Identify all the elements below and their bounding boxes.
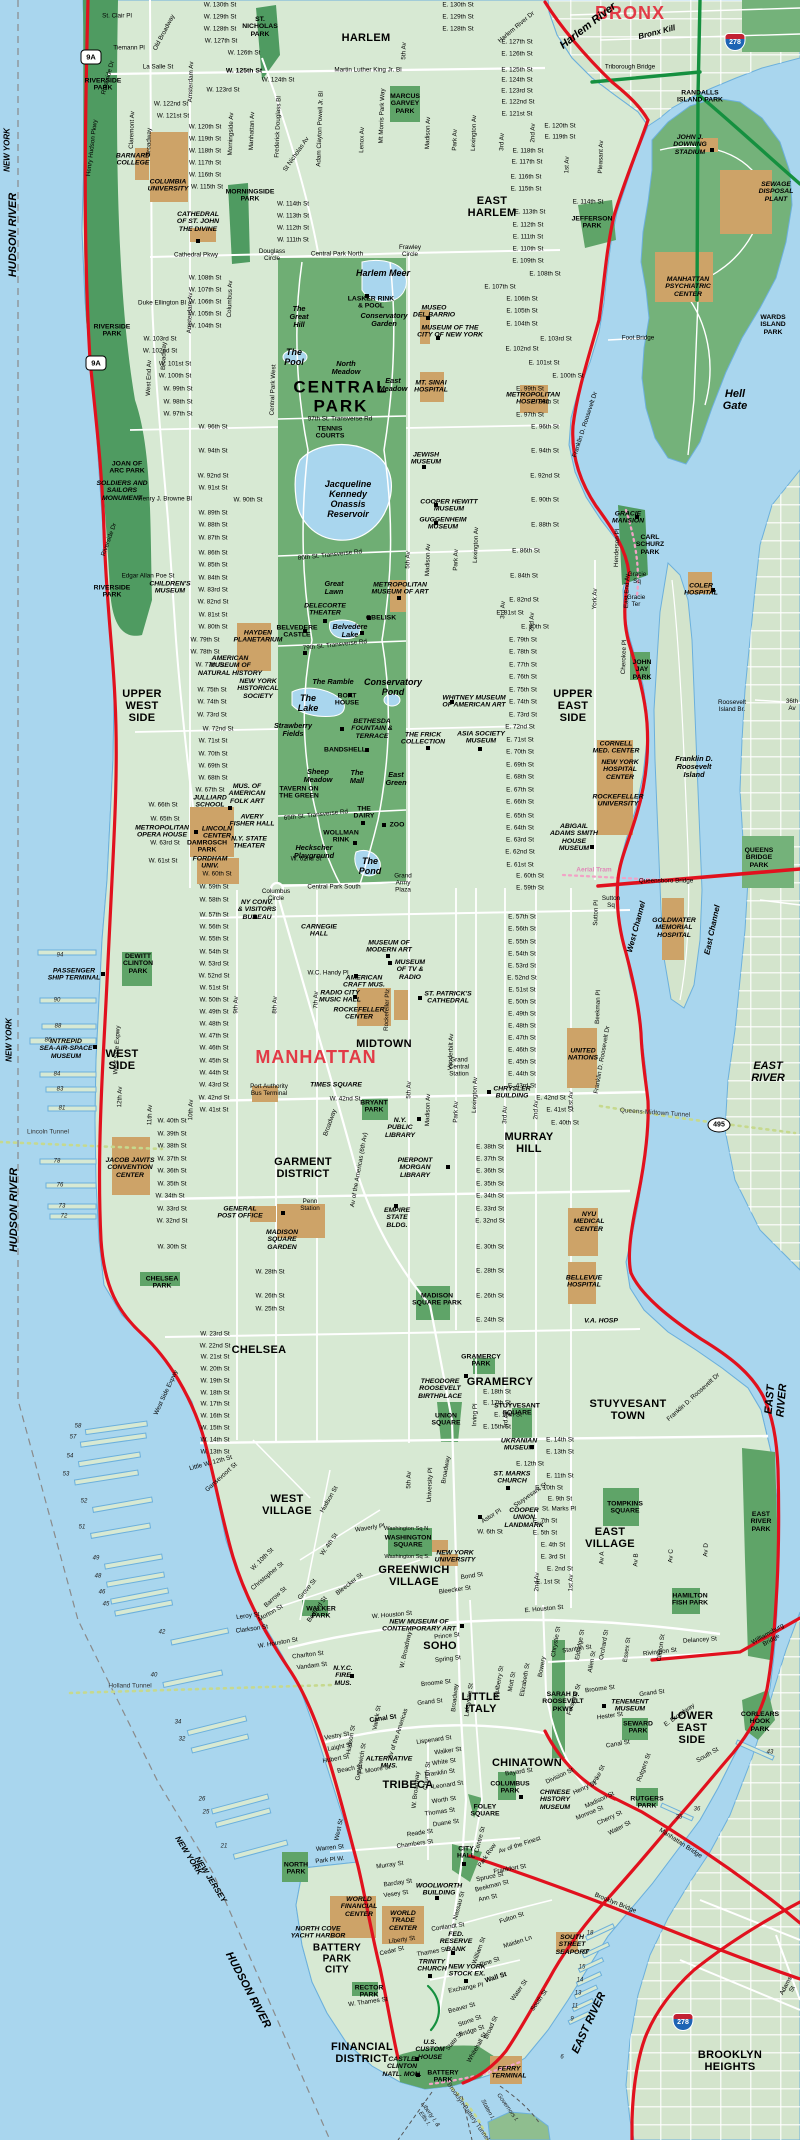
map-label: Central Park South bbox=[307, 885, 360, 892]
map-label: E. 36th St bbox=[476, 1169, 504, 1176]
map-label: Sheep Meadow bbox=[304, 768, 333, 784]
map-label: W. 21st St bbox=[201, 1355, 230, 1362]
map-label: LASKER RINK & POOL bbox=[348, 296, 394, 311]
landmark-marker bbox=[303, 651, 307, 655]
map-label: 90 bbox=[54, 998, 61, 1005]
map-label: E. 98th St bbox=[531, 400, 559, 407]
map-label: Warren St bbox=[316, 1844, 345, 1854]
map-label: 83 bbox=[57, 1087, 64, 1094]
map-label: Henderson Pl bbox=[614, 529, 622, 567]
map-label: COLUMBIA UNIVERSITY bbox=[148, 179, 189, 194]
map-label: RUTGERS PARK bbox=[630, 1796, 663, 1811]
map-label: Washington Sq N. bbox=[384, 1526, 430, 1532]
map-label: 2nd Av bbox=[534, 1572, 542, 1591]
map-label: Duke Ellington Bl bbox=[138, 301, 186, 308]
map-label: EAST RIVER bbox=[762, 1382, 789, 1418]
map-label: E. 130th St bbox=[442, 3, 473, 10]
map-label: W. 78th St bbox=[190, 650, 219, 657]
map-label: Washington Sq S. bbox=[384, 1554, 429, 1560]
map-label: 45 bbox=[103, 1602, 110, 1609]
map-label: LITTLE ITALY bbox=[461, 1691, 500, 1715]
map-label: Centre St bbox=[474, 1826, 488, 1853]
map-label: MANHATTAN PSYCHIATRIC CENTER bbox=[665, 276, 711, 298]
map-label: W. 117th St bbox=[189, 161, 221, 168]
map-label: E. 110th St bbox=[513, 247, 544, 254]
map-label: W. 90th St bbox=[233, 498, 262, 505]
map-label: Worth St bbox=[431, 1796, 456, 1806]
map-label: Harlem River bbox=[558, 0, 619, 51]
map-label: E. 77th St bbox=[509, 663, 537, 670]
map-label: 11th Av bbox=[147, 1105, 155, 1126]
map-label: W. 122nd St bbox=[154, 102, 188, 109]
map-label: COOPER UNION LANDMARK bbox=[504, 1507, 543, 1529]
map-label: W. 106th St bbox=[189, 300, 222, 307]
map-label: W. Broadway bbox=[412, 1771, 423, 1809]
landmark-marker bbox=[462, 1862, 466, 1866]
map-label: Broadway bbox=[161, 342, 169, 370]
map-label: Park Av bbox=[452, 129, 460, 151]
map-label: The Pool bbox=[284, 348, 304, 368]
map-label: Park Av bbox=[453, 549, 461, 571]
landmark-marker bbox=[451, 1951, 455, 1955]
map-label: W. 52nd St bbox=[199, 974, 230, 981]
map-label: East Meadow bbox=[379, 377, 408, 393]
map-label: E. 53rd St bbox=[508, 964, 536, 971]
landmark-marker bbox=[434, 503, 438, 507]
map-label: Central Park West bbox=[270, 364, 279, 415]
map-label: E. 24th St bbox=[476, 1318, 504, 1325]
map-label: Laight St bbox=[327, 1742, 353, 1753]
map-label: E. 46th St bbox=[508, 1048, 536, 1055]
map-label: THE DAIRY bbox=[354, 806, 375, 821]
map-label: Adams St bbox=[779, 1976, 800, 2000]
map-label: W. 75th St bbox=[197, 688, 226, 695]
map-label: Clarkson St bbox=[235, 1624, 268, 1635]
map-label: White St bbox=[432, 1758, 457, 1768]
map-label: RIVERSIDE PARK bbox=[94, 324, 131, 339]
map-label: E. 47th St bbox=[508, 1036, 536, 1043]
map-label: 6 bbox=[560, 2055, 563, 2062]
map-label: N.Y. PUBLIC LIBRARY bbox=[385, 1117, 415, 1139]
map-label: E. 50th St bbox=[508, 1000, 536, 1007]
map-label: E. 13th St bbox=[546, 1450, 574, 1457]
map-label: Liberty St bbox=[388, 1936, 415, 1947]
map-label: E. 51st St bbox=[508, 988, 535, 995]
map-label: W. 28th St bbox=[255, 1270, 284, 1277]
map-label: 7th Av bbox=[313, 991, 321, 1009]
map-label: Old Broadway bbox=[153, 14, 178, 52]
map-label: W. 115th St bbox=[191, 185, 223, 192]
map-label: CHILDREN'S MUSEUM bbox=[149, 581, 190, 596]
map-label: Beaver St bbox=[448, 2002, 477, 2016]
map-label: MURRAY HILL bbox=[504, 1131, 553, 1155]
map-label: E. 107th St bbox=[484, 285, 515, 292]
map-label: Vestry St bbox=[324, 1731, 350, 1742]
map-label: JULLIARD SCHOOL bbox=[193, 795, 227, 810]
map-label: W. 46th St bbox=[199, 1046, 228, 1053]
map-label: Beekman St bbox=[475, 1879, 510, 1894]
map-label: 1st Av bbox=[568, 1091, 576, 1108]
map-label: 3rd Av bbox=[503, 1411, 511, 1429]
map-label: W. 121st St bbox=[157, 114, 189, 121]
map-label: W. 72nd St bbox=[203, 727, 234, 734]
map-label: W. 38th St bbox=[157, 1144, 186, 1151]
map-label: 43 bbox=[767, 1750, 774, 1757]
map-label: NY CONV. & VISITORS BUREAU bbox=[238, 899, 276, 921]
map-label: W. Broadway bbox=[400, 1631, 414, 1669]
landmark-marker bbox=[394, 1204, 398, 1208]
map-label: Whitehall St bbox=[467, 2032, 490, 2065]
map-label: W. 32nd St bbox=[157, 1219, 188, 1226]
map-label: Essex St bbox=[623, 1637, 633, 1663]
map-label: WORLD FINANCIAL CENTER bbox=[341, 1896, 378, 1918]
map-label: E. 121st St bbox=[502, 112, 533, 119]
map-label: 78 bbox=[54, 1159, 61, 1166]
map-label: 11 bbox=[572, 2004, 578, 2011]
map-label: Pleasant Av bbox=[598, 140, 606, 173]
map-label: EMPIRE STATE BLDG. bbox=[384, 1207, 410, 1229]
map-label: Broadway bbox=[146, 128, 154, 156]
map-label: N. Moore St bbox=[357, 1765, 391, 1778]
map-label: Cherry St bbox=[596, 1810, 623, 1828]
map-label: Astor Pl bbox=[481, 1508, 503, 1526]
landmark-marker bbox=[348, 693, 352, 697]
map-label: 84 bbox=[54, 1072, 61, 1079]
map-label: Lafayette St bbox=[464, 1683, 476, 1717]
map-label: HUDSON RIVER bbox=[7, 193, 19, 277]
map-label: E. 54th St bbox=[508, 952, 536, 959]
map-label: BOAT HOUSE bbox=[335, 693, 359, 708]
map-label: 58 bbox=[75, 1424, 82, 1431]
map-label: Varick St bbox=[372, 1705, 383, 1731]
map-label: AMERICAN CRAFT MUS. bbox=[343, 975, 385, 990]
map-label: Av of the Americas bbox=[388, 1708, 411, 1760]
map-label: 97th St. Transverse Rd bbox=[308, 417, 372, 424]
landmark-marker bbox=[450, 700, 454, 704]
map-label: Strawberry Fields bbox=[274, 722, 312, 738]
map-label: HAYDEN PLANETARIUM bbox=[234, 630, 283, 645]
map-label: MIDTOWN bbox=[356, 1038, 412, 1050]
map-label: Franklin D. Roosevelt Dr bbox=[666, 1372, 722, 1423]
map-label: 5th Av bbox=[406, 1471, 414, 1489]
map-label: Cedar St bbox=[379, 1946, 405, 1959]
map-label: 5th Av bbox=[401, 42, 409, 60]
map-label: SOLDIERS AND SAILORS MONUMENT bbox=[96, 480, 147, 502]
map-label: W. 102nd St bbox=[143, 349, 177, 356]
map-label: W. 66th St bbox=[148, 803, 177, 810]
map-label: La Salle St bbox=[143, 65, 173, 72]
map-label: CHELSEA bbox=[232, 1344, 287, 1356]
map-label: HARLEM bbox=[342, 32, 391, 44]
map-label: MUS. OF AMERICAN FOLK ART bbox=[229, 783, 266, 805]
map-label: Leonard St bbox=[432, 1780, 463, 1791]
map-label: W. 96th St bbox=[198, 425, 227, 432]
map-label: Bond St bbox=[460, 1572, 483, 1582]
map-label: Holland Tunnel bbox=[108, 1682, 151, 1689]
map-label: Gracie Sq bbox=[628, 572, 647, 586]
map-label: West Side Expwy bbox=[113, 1025, 122, 1074]
map-label: BELVEDERE CASTLE bbox=[276, 625, 317, 640]
map-label: 54 bbox=[67, 1454, 74, 1461]
map-label: W. 112th St bbox=[277, 226, 309, 233]
map-label: QUEENS BRIDGE PARK bbox=[745, 847, 774, 869]
map-label: E. 52nd St bbox=[507, 976, 536, 983]
landmark-marker bbox=[365, 748, 369, 752]
map-label: ALTERNATIVE MUS. bbox=[366, 1756, 413, 1771]
map-label: HUDSON RIVER bbox=[8, 1168, 20, 1252]
map-label: W. 59th St bbox=[199, 885, 228, 892]
map-label: W. 104th St bbox=[189, 324, 222, 331]
map-label: E. 48th St bbox=[508, 1024, 536, 1031]
map-label: E. 104th St bbox=[506, 322, 537, 329]
map-label: W. 53rd St bbox=[199, 962, 228, 969]
map-label: E. 10th St bbox=[535, 1486, 563, 1493]
map-label: W. 18th St bbox=[200, 1391, 229, 1398]
landmark-marker bbox=[635, 515, 639, 519]
map-label: The Lake bbox=[298, 694, 319, 714]
map-label: E. 44th St bbox=[508, 1072, 536, 1079]
map-label: W. 88th St bbox=[198, 523, 227, 530]
map-label: W. 130th St bbox=[204, 3, 237, 10]
map-label: 2nd Av bbox=[529, 612, 537, 631]
map-label: E. Houston St bbox=[524, 1605, 563, 1615]
landmark-marker bbox=[464, 1374, 468, 1378]
map-label: W. 80th St bbox=[198, 625, 227, 632]
map-label: 79th St. Transverse Rd bbox=[303, 639, 368, 653]
map-label: W. 25th St bbox=[255, 1307, 284, 1314]
map-label: BARNARD COLLEGE bbox=[116, 153, 150, 168]
map-label: HUDSON RIVER bbox=[223, 1950, 273, 2030]
map-label: TRIBECA bbox=[383, 1779, 434, 1791]
map-label: MADISON SQUARE PARK bbox=[412, 1293, 462, 1308]
map-label: UPPER EAST SIDE bbox=[553, 688, 592, 724]
map-label: Heckscher Playground bbox=[294, 844, 334, 860]
map-label: Grove St bbox=[297, 1578, 318, 1601]
map-label: AMERICAN MUSEUM OF NATURAL HISTORY bbox=[198, 655, 262, 677]
map-label: Adam Clayton Powell Jr. Bl bbox=[316, 91, 326, 167]
map-label: W. 126th St bbox=[228, 51, 261, 58]
map-label: NEW YORK UNIVERSITY bbox=[435, 1550, 476, 1565]
route-shield-278: 278 bbox=[725, 33, 746, 51]
map-label: LOWER EAST SIDE bbox=[671, 1710, 713, 1746]
map-label: 2nd Av bbox=[530, 123, 538, 142]
map-label: North Meadow bbox=[332, 360, 361, 376]
map-label: Lexington Av bbox=[473, 527, 481, 563]
map-label: W. 44th St bbox=[199, 1071, 228, 1078]
landmark-marker bbox=[323, 619, 327, 623]
map-label: The Pond bbox=[359, 857, 382, 877]
map-label: Wall St bbox=[484, 1971, 508, 1985]
map-label: NEW YORK STOCK EX. bbox=[448, 1964, 485, 1979]
map-label: W. 36th St bbox=[157, 1169, 186, 1176]
map-label: CARNEGIE HALL bbox=[301, 924, 337, 939]
map-label: TRINITY CHURCH bbox=[417, 1959, 446, 1974]
map-label: Aerial Tram bbox=[576, 866, 611, 873]
map-label: W. 40th St bbox=[157, 1119, 186, 1126]
map-label: W. 100th St bbox=[159, 374, 192, 381]
landmark-marker bbox=[388, 961, 392, 965]
map-label: Queens-Midtown Tunnel bbox=[620, 1107, 691, 1119]
map-label: NEW MUSEUM OF CONTEMPORARY ART bbox=[382, 1619, 456, 1634]
map-label: 88 bbox=[55, 1024, 62, 1031]
map-label: SEWAGE DISPOSAL PLANT bbox=[759, 181, 794, 203]
map-label: METROPOLITAN HOSPITAL bbox=[506, 392, 560, 407]
map-label: CHELSEA PARK bbox=[146, 1276, 178, 1291]
map-label: Stanton St bbox=[562, 1645, 592, 1656]
map-label: Lenox Av bbox=[359, 127, 367, 153]
map-label: East End Av bbox=[624, 574, 632, 608]
map-label: South St bbox=[530, 1989, 550, 2013]
map-label: W. 97th St bbox=[163, 412, 192, 419]
map-label: Port Authority Bus Terminal bbox=[250, 1084, 288, 1098]
map-label: E. 118th St bbox=[513, 149, 544, 156]
landmark-marker bbox=[367, 616, 371, 620]
map-label: E. 96th St bbox=[531, 425, 559, 432]
map-label: Hudson St bbox=[346, 1725, 358, 1755]
landmark-marker bbox=[434, 521, 438, 525]
landmark-marker bbox=[228, 806, 232, 810]
map-label: 18 bbox=[587, 1931, 594, 1938]
map-label: E. 12th St bbox=[516, 1462, 544, 1469]
map-label: 26 bbox=[199, 1797, 206, 1804]
map-label: Madison Av bbox=[425, 1094, 433, 1127]
landmark-marker bbox=[417, 1117, 421, 1121]
map-label: E. 43rd St bbox=[508, 1084, 536, 1091]
map-label: 46 bbox=[99, 1590, 106, 1597]
landmark-marker bbox=[350, 1674, 354, 1678]
map-label: WOOLWORTH BUILDING bbox=[416, 1883, 462, 1898]
map-label: WARDS ISLAND PARK bbox=[760, 314, 787, 336]
map-label: 21 bbox=[221, 1844, 228, 1851]
map-label: E. 69th St bbox=[506, 763, 534, 770]
map-label: THE FRICK COLLECTION bbox=[401, 732, 445, 747]
map-label: E. 67th St bbox=[506, 788, 534, 795]
map-label: Lexington Av bbox=[471, 115, 479, 151]
map-label: 53 bbox=[63, 1472, 70, 1479]
map-label: METROPOLITAN MUSEUM OF ART bbox=[371, 582, 428, 597]
map-label: W. 71st St bbox=[199, 739, 228, 746]
map-label: PASSENGER SHIP TERMINAL bbox=[48, 968, 101, 983]
map-label: NYU MEDICAL CENTER bbox=[574, 1211, 605, 1233]
map-label: W. 20th St bbox=[200, 1367, 229, 1374]
map-label: COOPER HEWITT MUSEUM bbox=[420, 499, 477, 514]
map-label: Av C bbox=[668, 1549, 675, 1563]
map-label: THEODORE ROOSEVELT BIRTHPLACE bbox=[418, 1378, 462, 1400]
map-label: W. 113th St bbox=[277, 214, 309, 221]
map-label: Elizabeth St bbox=[520, 1663, 533, 1697]
map-label: E. 86th St bbox=[512, 549, 540, 556]
route-shield-278: 278 bbox=[673, 2013, 694, 2031]
map-label: W. 48th St bbox=[199, 1022, 228, 1029]
map-label: Bleecker St bbox=[439, 1585, 472, 1596]
route-shield-9A: 9A bbox=[81, 50, 102, 65]
map-label: 2nd Av bbox=[533, 1100, 541, 1119]
map-label: Av A bbox=[599, 1551, 606, 1564]
map-label: St. Marks Pl bbox=[542, 1507, 576, 1514]
map-label: CATHEDRAL OF ST. JOHN THE DIVINE bbox=[177, 211, 219, 233]
map-label: William St bbox=[472, 1937, 488, 1966]
map-label: Av of the Finest bbox=[498, 1836, 542, 1856]
map-label: Broadway bbox=[323, 1109, 339, 1138]
map-label: WORLD TRADE CENTER bbox=[389, 1910, 417, 1932]
map-label: 40 bbox=[151, 1673, 158, 1680]
map-label: E. 42nd St bbox=[536, 1096, 565, 1103]
map-label: 3rd Av bbox=[500, 601, 508, 619]
map-label: NEW YORK bbox=[173, 1835, 204, 1877]
map-label: Triborough Bridge bbox=[605, 65, 655, 72]
map-label: Harlem River Dr bbox=[497, 11, 536, 45]
map-label: W. 69th St bbox=[198, 764, 227, 771]
map-label: Clinton St bbox=[657, 1634, 668, 1662]
map-label: DAMROSCH PARK bbox=[187, 840, 227, 855]
map-label: 73 bbox=[59, 1204, 66, 1211]
map-label: STUYVESANT SQUARE bbox=[494, 1403, 540, 1418]
map-label: Christopher St bbox=[250, 1561, 285, 1592]
map-label: E. 108th St bbox=[529, 272, 560, 279]
map-label: E. 114th St bbox=[573, 200, 604, 207]
map-label: E. 1st St bbox=[536, 1580, 560, 1587]
map-label: Claremont Av bbox=[129, 111, 137, 149]
map-label: W. 124th St bbox=[262, 78, 295, 85]
map-label: W. 10th St bbox=[250, 1547, 275, 1572]
map-label: 10th Av bbox=[188, 1099, 196, 1120]
map-label: Av of the Americas (6th Av) bbox=[350, 1132, 370, 1208]
map-label: Water St bbox=[510, 1979, 530, 2003]
map-label: Irving Pl bbox=[472, 1404, 480, 1427]
map-label: TAVERN ON THE GREEN bbox=[279, 786, 319, 801]
map-label: E. 40th St bbox=[551, 1121, 579, 1128]
map-label: E. 61st St bbox=[506, 863, 533, 870]
map-label: St. Clair Pl bbox=[102, 14, 132, 21]
landmark-marker bbox=[426, 316, 430, 320]
map-label: Forsythe St bbox=[567, 1684, 584, 1717]
map-label: W. 107th St bbox=[189, 288, 222, 295]
map-label: E. 2nd St bbox=[547, 1567, 573, 1574]
landmark-marker bbox=[590, 845, 594, 849]
map-label: W. 70th St bbox=[198, 752, 227, 759]
map-label: E. 37th St bbox=[476, 1157, 504, 1164]
map-label: South St bbox=[696, 1747, 720, 1765]
map-label: 94 bbox=[57, 953, 64, 960]
map-label: E. Broadway bbox=[663, 1703, 696, 1729]
map-label: E. 26th St bbox=[476, 1294, 504, 1301]
map-label: 3rd Av bbox=[499, 133, 507, 151]
map-label: W. 120th St bbox=[189, 125, 222, 132]
map-label: W. 15th St bbox=[200, 1426, 229, 1433]
landmark-marker bbox=[382, 823, 386, 827]
map-label: W. 79th St bbox=[190, 638, 219, 645]
map-label: E. 109th St bbox=[512, 259, 543, 266]
map-label: W. 94th St bbox=[198, 449, 227, 456]
map-label: Stuyvesant St bbox=[513, 1482, 549, 1510]
map-label: JOHN JAY PARK bbox=[633, 659, 652, 681]
map-label: W. 42nd St bbox=[330, 1097, 361, 1104]
map-label: W. 87th St bbox=[198, 536, 227, 543]
map-label: E. 17th St bbox=[483, 1401, 511, 1408]
map-label: E. 72nd St bbox=[505, 725, 534, 732]
map-label: Gracie Ter bbox=[627, 595, 646, 609]
map-label: Chrystie St bbox=[551, 1626, 563, 1658]
map-label: E. 16th St bbox=[494, 1413, 522, 1420]
map-label: 25 bbox=[203, 1810, 210, 1817]
map-label: BRONX bbox=[595, 4, 665, 24]
landmark-marker bbox=[602, 1704, 606, 1708]
map-label: St Nicholas Av bbox=[283, 136, 312, 173]
map-label: W. 42nd St bbox=[199, 1096, 230, 1103]
map-label: West Side Expwy bbox=[154, 1369, 181, 1416]
map-label: ST. MARKS CHURCH bbox=[494, 1471, 531, 1486]
map-label: 57 bbox=[70, 1435, 77, 1442]
